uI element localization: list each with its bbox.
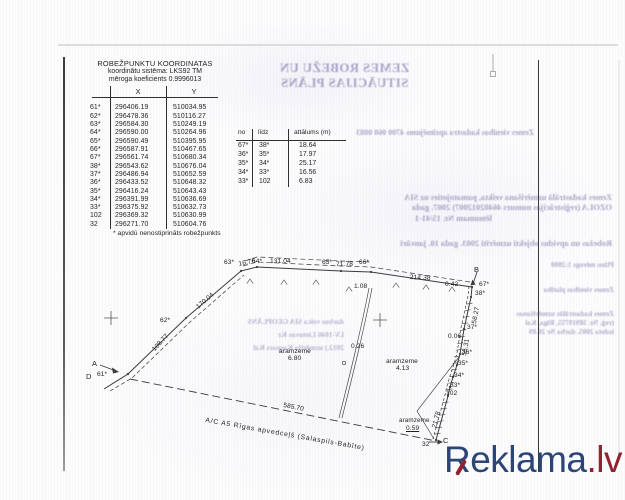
ditch-line bbox=[342, 288, 372, 418]
culvert-symbol bbox=[342, 361, 346, 365]
grid-cross bbox=[373, 313, 387, 327]
plan-carets bbox=[247, 279, 455, 292]
boundary-dashes bbox=[110, 275, 244, 391]
arrowheads bbox=[112, 280, 476, 445]
parcel-line bbox=[417, 357, 459, 439]
boundary-dashes bbox=[433, 286, 469, 439]
watermark-logo: Reklama.lv bbox=[444, 440, 622, 480]
watermark-tld: .lv bbox=[587, 439, 623, 480]
boundary-line bbox=[104, 271, 241, 389]
ditch-line bbox=[339, 288, 369, 418]
boundary-dashes bbox=[245, 257, 370, 262]
road-boundary-line bbox=[130, 379, 436, 441]
plan-drawing bbox=[0, 0, 625, 500]
plan-vertex-dots bbox=[127, 266, 473, 441]
plan-ticks bbox=[435, 303, 473, 434]
scanned-land-survey-page: { "coord_table": { "title": "ROBEŽPUNKTU… bbox=[0, 0, 625, 500]
fold-mark-square bbox=[491, 72, 496, 77]
grid-cross bbox=[104, 311, 118, 325]
